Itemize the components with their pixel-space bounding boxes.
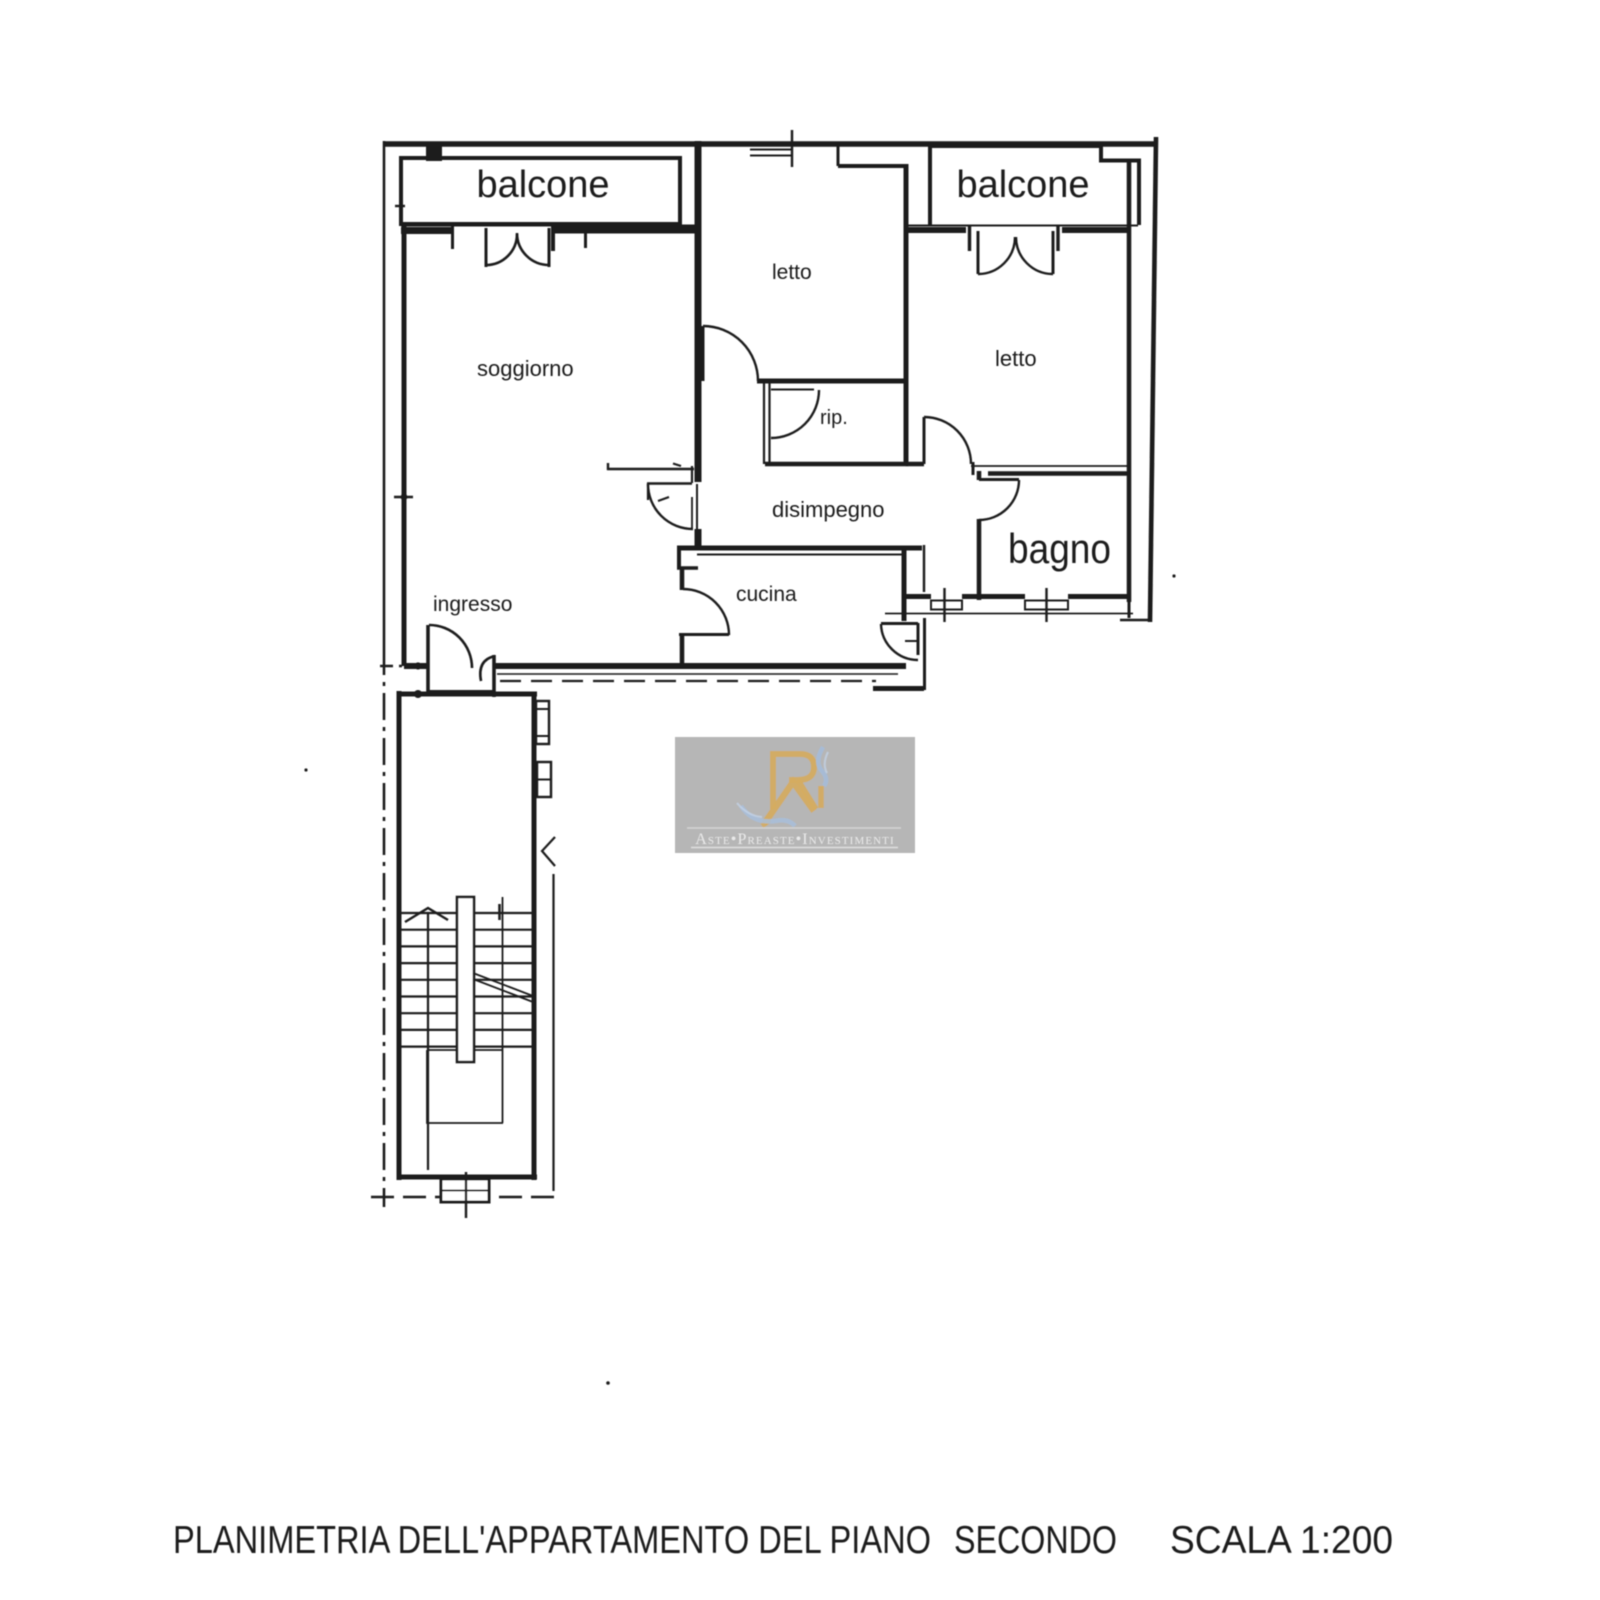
svg-text:letto: letto <box>772 261 812 284</box>
svg-text:ingresso: ingresso <box>433 593 512 616</box>
svg-text:PLANIMETRIA DELL'APPARTAMENTO: PLANIMETRIA DELL'APPARTAMENTO DEL PIANO <box>173 1519 931 1562</box>
svg-text:SECONDO: SECONDO <box>954 1519 1117 1562</box>
svg-text:letto: letto <box>995 346 1037 371</box>
svg-text:balcone: balcone <box>956 164 1089 206</box>
svg-text:rip.: rip. <box>820 407 848 429</box>
svg-text:Aste•Preaste•Investimenti: Aste•Preaste•Investimenti <box>695 831 895 848</box>
svg-text:disimpegno: disimpegno <box>772 497 885 522</box>
svg-text:balcone: balcone <box>476 164 609 206</box>
svg-text:bagno: bagno <box>1008 525 1111 572</box>
svg-text:SCALA 1:200: SCALA 1:200 <box>1170 1519 1393 1562</box>
svg-text:cucina: cucina <box>736 583 797 606</box>
svg-text:soggiorno: soggiorno <box>477 356 574 381</box>
